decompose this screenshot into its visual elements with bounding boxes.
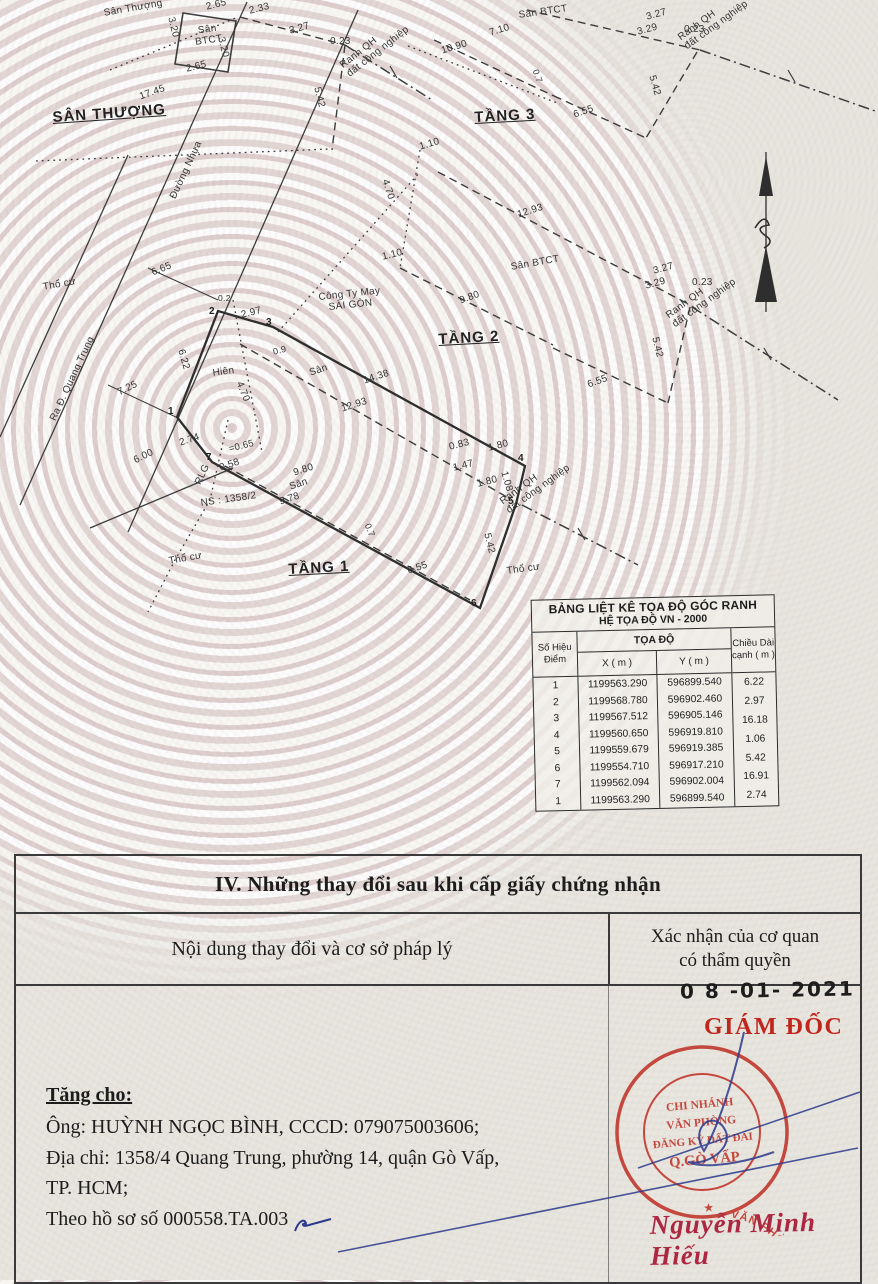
x-coordinate-value: 1199562.094 [581, 778, 659, 790]
edge-length-value: 16.18 [733, 715, 776, 726]
column-header-length: Chiều Dài cạnh ( m ) [731, 627, 775, 673]
dim-label: 2.65 [205, 0, 228, 13]
x-coordinate-value: 1199559.679 [580, 745, 658, 757]
dim-label: 3.27 [645, 7, 668, 23]
dim-label: 9.80 [458, 289, 481, 307]
point-id-value: 3 [534, 714, 578, 725]
dim-label: 1.10 [381, 247, 404, 263]
point-label: 7 [206, 452, 213, 463]
dim-label: 1.47 [452, 458, 475, 474]
floor-label-tang-3: TẦNG 3 [474, 107, 536, 127]
y-coordinate-value: 596902.460 [658, 694, 732, 706]
point-label: 1 [168, 406, 175, 417]
dim-label: 5.42 [649, 336, 665, 359]
dim-label: 17.45 [138, 83, 167, 103]
tho-cu-label: Thổ cư [506, 561, 541, 577]
point-id-value: 4 [535, 730, 579, 741]
coordinate-table: BẢNG LIỆT KÊ TỌA ĐỘ GÓC RANH HỆ TỌA ĐỘ V… [531, 594, 780, 811]
floor-label-tang-2: TẦNG 2 [438, 329, 500, 349]
point-id-value: 6 [535, 763, 579, 774]
x-value-column: 1199563.2901199568.7801199567.5121199560… [578, 675, 660, 810]
dim-label: 4.70 [379, 178, 396, 201]
y-coordinate-value: 596905.146 [658, 710, 732, 722]
grant-text-block: Tăng cho: Ông: HUỲNH NGỌC BÌNH, CCCD: 07… [46, 1080, 586, 1234]
dim-label: 14.38 [362, 368, 391, 387]
dim-label: 1.80 [487, 438, 510, 454]
tho-cu-label: Thổ cư [42, 276, 77, 293]
dim-label: 3.29 [644, 276, 667, 292]
road-label-quang-trung: Ra Đ. Quang Trung [48, 335, 97, 423]
y-coordinate-value: 596919.385 [659, 743, 733, 755]
dim-label: 0.23 [330, 36, 351, 47]
point-id-value: 2 [534, 697, 578, 708]
san-btct-label: Sân BTCT [518, 3, 568, 21]
dim-label: 12.93 [340, 396, 369, 415]
signer-name: Nguyễn Minh Hiếu [649, 1206, 860, 1272]
dim-label: 0.7 [363, 522, 377, 538]
dim-label: 2.65 [185, 59, 208, 75]
floor-label-san-thuong: SÂN THƯỢNG [52, 102, 166, 127]
date-stamp: 0 8 -01- 2021 [680, 976, 855, 1003]
hien-label: Hiên [212, 365, 235, 379]
dim-label: 2.74 [178, 432, 201, 449]
y-coordinate-value: 596899.540 [657, 677, 731, 689]
y-coordinate-value: 596899.540 [660, 793, 734, 805]
column-header-y: Y ( m ) [657, 649, 732, 674]
dim-label: 3.20 [215, 36, 231, 59]
dim-label: 6.00 [132, 447, 155, 466]
dim-label: 1.80 [476, 474, 499, 490]
y-value-column: 596899.540596902.460596905.146596919.810… [657, 673, 734, 808]
grant-line-address: Địa chỉ: 1358/4 Quang Trung, phường 14, … [46, 1143, 586, 1173]
edge-length-value: 16.91 [735, 772, 778, 783]
point-id-value: 7 [536, 780, 580, 791]
floor-label-tang-1: TẦNG 1 [288, 559, 350, 579]
grant-line-owner: Ông: HUỲNH NGỌC BÌNH, CCCD: 079075003606… [46, 1112, 586, 1142]
road-label-duong-nhua: Đường Nhựa [168, 139, 205, 200]
dim-label: 10.90 [440, 38, 469, 56]
edge-length-value: 2.97 [733, 696, 776, 707]
dim-label: 5.42 [311, 86, 327, 109]
dim-label: 2.33 [248, 1, 271, 17]
grant-heading: Tăng cho: [46, 1080, 586, 1110]
column-header-authority-confirmation: Xác nhận của cơ quan có thẩm quyền [608, 914, 860, 984]
san-thuong-small-label: Sân Thượng [103, 0, 163, 19]
dim-label: 0.83 [448, 437, 471, 453]
point-label: 6 [471, 598, 478, 609]
san-label: Sân [308, 362, 329, 378]
point-id-column: 12345671 [533, 677, 580, 811]
column-header-change-content: Nội dung thay đổi và cơ sở pháp lý [16, 914, 608, 984]
x-coordinate-value: 1199567.512 [579, 712, 657, 724]
y-coordinate-value: 596917.210 [659, 760, 733, 772]
y-coordinate-value: 596902.004 [660, 776, 734, 788]
san-btct-label: Sân BTCT [510, 253, 560, 273]
grant-line-dossier: Theo hồ sơ số 000558.TA.003 [46, 1204, 288, 1234]
point-id-value: 1 [533, 681, 577, 692]
dim-label: 3.27 [288, 20, 311, 36]
ns-label: NS : 1358/2 [200, 490, 257, 509]
x-coordinate-value: 1199554.710 [580, 762, 658, 774]
point-id-value: 5 [535, 747, 579, 758]
column-header-x: X ( m ) [578, 651, 658, 676]
dim-label: 3.27 [652, 261, 675, 277]
san-label: Sân [288, 476, 309, 492]
x-coordinate-value: 1199560.650 [580, 729, 658, 741]
tho-cu-label: Thổ cư [168, 550, 203, 567]
dim-label: 6.55 [586, 373, 609, 391]
section-iv-changes: IV. Những thay đổi sau khi cấp giấy chứn… [14, 854, 862, 1284]
dim-label: 2.97 [240, 305, 263, 321]
scanned-land-certificate-page: { "colors":{"stamp_red":"#c23b30","title… [0, 0, 878, 1280]
dim-label: 6.55 [406, 560, 429, 577]
dim-label: 6.55 [572, 103, 595, 120]
x-coordinate-value: 1199563.290 [578, 679, 656, 691]
dim-label: 12.93 [516, 202, 545, 221]
dim-label: 0.7 [531, 68, 545, 84]
dim-label: 7.10 [488, 22, 511, 39]
rlg-label: RLG [193, 463, 212, 487]
ranh-qh-label: Ranh QH đất công nghiệp [676, 0, 750, 52]
blue-pen-mark [292, 1216, 334, 1234]
dim-label: 1.10 [418, 136, 441, 153]
dim-label: 0.58 [218, 457, 241, 474]
y-coordinate-value: 596919.810 [659, 727, 733, 739]
edge-length-value: 1.06 [734, 734, 777, 745]
point-label: 2 [209, 306, 216, 317]
edge-length-column: 6.222.9716.181.065.4216.912.74 [732, 672, 778, 806]
point-label: 4 [518, 453, 525, 464]
point-label: 3 [266, 317, 273, 328]
dim-label: 9.78 [278, 491, 301, 508]
dim-label: 6.22 [175, 348, 191, 371]
section-iv-title: IV. Những thay đổi sau khi cấp giấy chứn… [16, 856, 860, 914]
dim-label: 3.20 [165, 16, 181, 39]
column-header-point: Số Hiệu Điểm [532, 632, 577, 678]
dim-label: 3.29 [636, 22, 659, 38]
dim-label: 5.42 [481, 532, 497, 555]
dim-label: 5.42 [646, 74, 662, 97]
point-id-value: 1 [536, 796, 580, 807]
dim-label: 0.2 [218, 294, 231, 304]
x-coordinate-value: 1199563.290 [581, 795, 659, 807]
dim-label: 4.70 [234, 380, 252, 403]
dim-label: 7.25 [116, 379, 139, 398]
x-coordinate-value: 1199568.780 [579, 696, 657, 708]
edge-length-value: 6.22 [732, 678, 775, 689]
company-label: Công Ty May SÀI GÒN [318, 286, 382, 315]
edge-length-value: 5.42 [734, 753, 777, 764]
ranh-qh-label: Ranh QH đất công nghiệp [338, 15, 411, 79]
edge-length-value: 2.74 [735, 791, 778, 802]
dim-label: 6.65 [150, 260, 173, 278]
dim-label: 0.9 [272, 344, 287, 357]
grant-line-city: TP. HCM; [46, 1173, 586, 1203]
dim-label: =0.65 [228, 439, 255, 455]
